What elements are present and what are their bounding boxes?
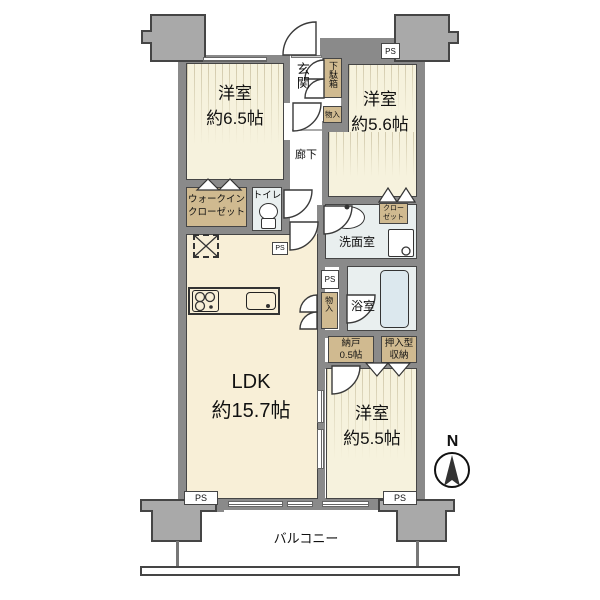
column-bottom-right xyxy=(396,510,447,542)
entrance-label: 玄関 xyxy=(292,62,311,90)
closet-label: クローゼット xyxy=(380,204,407,222)
floor-plan: PS PS PS PS PS xyxy=(0,0,600,600)
balcony-rail-link-left xyxy=(176,541,179,567)
toilet-tank xyxy=(261,218,276,229)
sliding-door-ldk-bedroom-c-1 xyxy=(317,390,324,423)
ldk-label: LDK約15.7帖 xyxy=(200,368,302,426)
column-top-left xyxy=(150,14,206,62)
corridor-lower-floor xyxy=(290,205,317,235)
ps-box-bottom-right: PS xyxy=(383,491,417,505)
bathroom-label: 浴室 xyxy=(345,298,381,315)
ps-box-bath: PS xyxy=(321,270,339,289)
balcony-rail-link-right xyxy=(416,541,419,567)
nando-label: 納戸0.5帖 xyxy=(328,338,374,363)
oshiire-label: 押入型収納 xyxy=(381,338,417,363)
window-bedroom-c-bottom xyxy=(322,501,369,507)
kitchen-stove xyxy=(192,290,219,312)
washing-machine-pan xyxy=(388,229,414,257)
bedroom-b-label: 洋室約5.6帖 xyxy=(338,88,422,137)
column-top-left-tab xyxy=(141,30,152,44)
compass-circle xyxy=(434,452,470,488)
ps-box-toilet: PS xyxy=(272,242,288,255)
genkan-step-line xyxy=(292,129,322,131)
ps-box-bottom-left: PS xyxy=(184,491,218,505)
compass-north-label: N xyxy=(444,430,461,453)
kitchen-sink xyxy=(246,292,276,310)
sliding-door-ldk-bedroom-c-2 xyxy=(317,429,324,469)
genkan-threshold xyxy=(291,55,322,58)
ldk-floor xyxy=(186,234,318,499)
washroom-sink xyxy=(329,206,365,229)
wic-label: ウォークインクローゼット xyxy=(188,193,245,220)
shoe-cabinet-label: 下駄箱 xyxy=(326,61,339,88)
storage-bath-label: 物入 xyxy=(323,296,335,312)
window-ldk-bottom-2 xyxy=(287,501,313,507)
bathtub xyxy=(380,270,409,328)
window-bedroom-a-top xyxy=(203,57,267,62)
balcony-label: バルコニー xyxy=(266,530,346,549)
toilet-label: トイレ xyxy=(252,189,282,203)
bedroom-b-floor-lower xyxy=(328,132,417,197)
corridor-label: 廊下 xyxy=(292,148,320,164)
balcony-railing xyxy=(140,566,460,576)
washroom-label: 洗面室 xyxy=(328,234,386,251)
window-ldk-bottom-1 xyxy=(228,501,283,507)
bedroom-c-label: 洋室約5.5帖 xyxy=(330,402,414,451)
entrance-door-arc xyxy=(283,22,316,55)
column-bottom-left xyxy=(151,510,202,542)
ps-box-top-right: PS xyxy=(381,43,400,59)
floor-hatch xyxy=(193,234,219,258)
column-top-right xyxy=(394,14,450,62)
storage-entrance-label: 物入 xyxy=(323,110,342,121)
bedroom-a-label: 洋室約6.5帖 xyxy=(196,82,274,131)
column-top-right-tab xyxy=(448,31,459,44)
